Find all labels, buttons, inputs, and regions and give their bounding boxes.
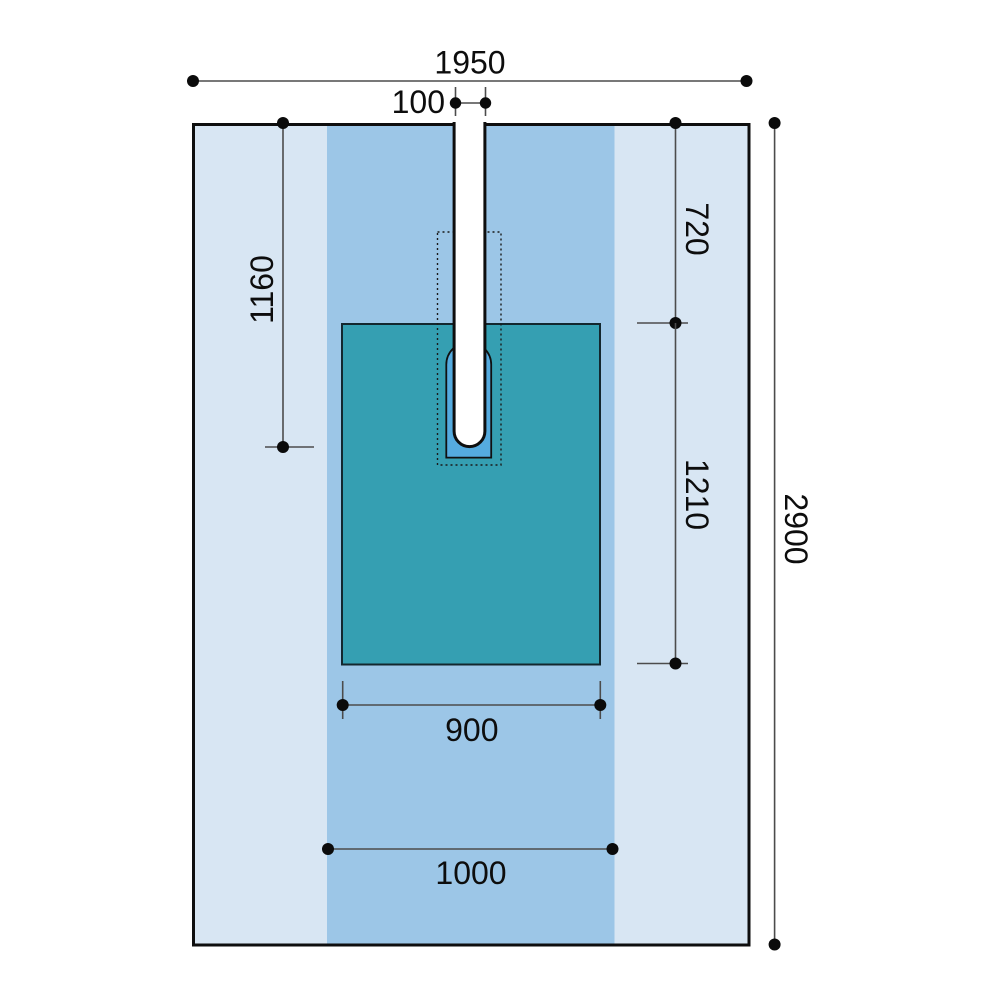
svg-text:100: 100 <box>392 84 445 120</box>
svg-text:1000: 1000 <box>435 855 506 891</box>
svg-text:900: 900 <box>445 712 498 748</box>
svg-text:720: 720 <box>679 202 715 255</box>
svg-text:2900: 2900 <box>778 493 814 564</box>
svg-text:1950: 1950 <box>434 45 505 81</box>
svg-text:1210: 1210 <box>679 459 715 530</box>
svg-text:1160: 1160 <box>244 255 280 324</box>
